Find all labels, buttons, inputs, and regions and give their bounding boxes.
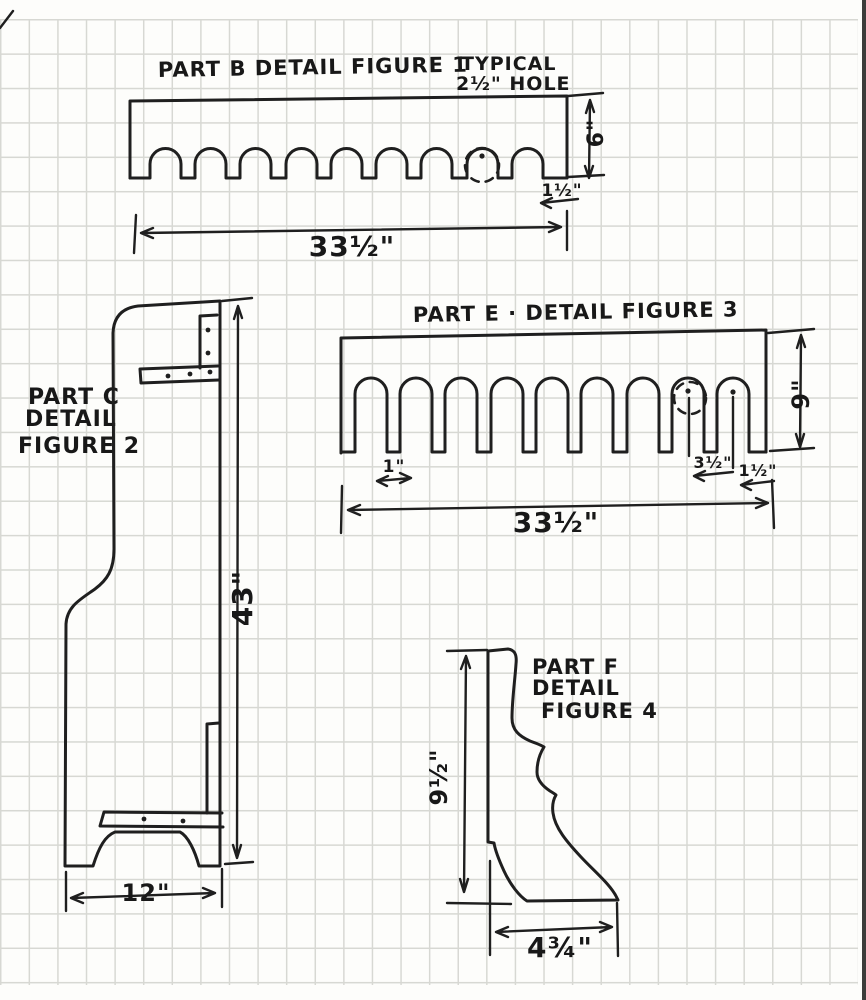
- figure4-part-f-detail: PART F DETAIL FIGURE 4 9½" 4¾": [425, 649, 658, 964]
- figure1-end-margin-dimension: 1½": [541, 181, 583, 208]
- screw-dot: [142, 817, 147, 822]
- figure3-spacing-dimension: 3½": [693, 453, 733, 481]
- screw-dot: [181, 819, 186, 824]
- figure3-title: PART E · DETAIL FIGURE 3: [413, 297, 739, 327]
- figure3-tab-dimension: 1": [377, 457, 411, 486]
- figure3-part-e-detail: PART E · DETAIL FIGURE 3 1" 3½": [341, 297, 815, 539]
- figure4-height-dimension: 9½": [425, 650, 511, 904]
- screw-dot: [206, 328, 211, 333]
- figure1-height-text: 6": [584, 119, 609, 148]
- figure1-note-line1: TYPICAL: [461, 53, 556, 75]
- part-c-top-shelf: [140, 366, 219, 383]
- figure1-height-dimension: 6": [568, 93, 609, 178]
- figure1-width-text: 33½": [309, 230, 396, 263]
- corner-mark: [0, 11, 13, 28]
- figure1-title: PART B DETAIL FIGURE 1: [158, 53, 468, 82]
- figure2-label-line3: FIGURE 2: [18, 434, 140, 459]
- figure1-note-line2: 2½" HOLE: [456, 73, 571, 95]
- figure3-width-dimension: 33½": [341, 480, 774, 539]
- hole-center-dot: [730, 389, 735, 394]
- figure4-width-text: 4¾": [527, 931, 593, 964]
- figure3-height-text: 9": [787, 378, 815, 409]
- part-b-scalloped-edge: [130, 148, 567, 178]
- technical-drawing: PART B DETAIL FIGURE 1 TYPICAL 2½" HOLE …: [0, 0, 866, 1000]
- figure1-width-dimension: 33½": [134, 211, 567, 263]
- part-c-bottom-shelf: [100, 812, 223, 827]
- figure4-label-line3: FIGURE 4: [541, 699, 658, 723]
- figure2-width-dimension: 12": [66, 869, 222, 911]
- figure3-spacing-text: 3½": [693, 453, 732, 472]
- figure1-part-b-detail: PART B DETAIL FIGURE 1 TYPICAL 2½" HOLE …: [130, 53, 609, 263]
- part-c-bottom-cleat: [207, 723, 219, 813]
- figure3-end-margin-text: 1½": [738, 461, 777, 480]
- part-c-top-cleat: [200, 315, 217, 368]
- graph-paper-page: PART B DETAIL FIGURE 1 TYPICAL 2½" HOLE …: [0, 0, 866, 1000]
- part-e-outline: [341, 330, 766, 453]
- screw-dot: [206, 351, 211, 356]
- screw-dot: [188, 372, 193, 377]
- typical-hole-dashed-circle: [465, 148, 499, 182]
- figure3-width-text: 33½": [513, 506, 600, 539]
- figure4-label-line2: DETAIL: [532, 676, 620, 700]
- figure3-height-dimension: 9": [768, 329, 815, 451]
- figure1-end-margin-text: 1½": [541, 181, 582, 201]
- figure2-width-text: 12": [122, 879, 171, 907]
- figure2-height-text: 43": [226, 570, 259, 627]
- figure2-part-c-detail: PART C DETAIL FIGURE 2 43": [18, 298, 259, 911]
- figure2-label-line2: DETAIL: [25, 407, 117, 432]
- figure2-height-dimension: 43": [222, 298, 259, 864]
- screw-dot: [208, 370, 213, 375]
- figure3-tab-text: 1": [383, 457, 406, 477]
- figure4-height-text: 9½": [425, 748, 453, 805]
- hole-center-dot: [479, 153, 484, 158]
- screw-dot: [166, 374, 171, 379]
- hole-center-dot: [685, 388, 690, 393]
